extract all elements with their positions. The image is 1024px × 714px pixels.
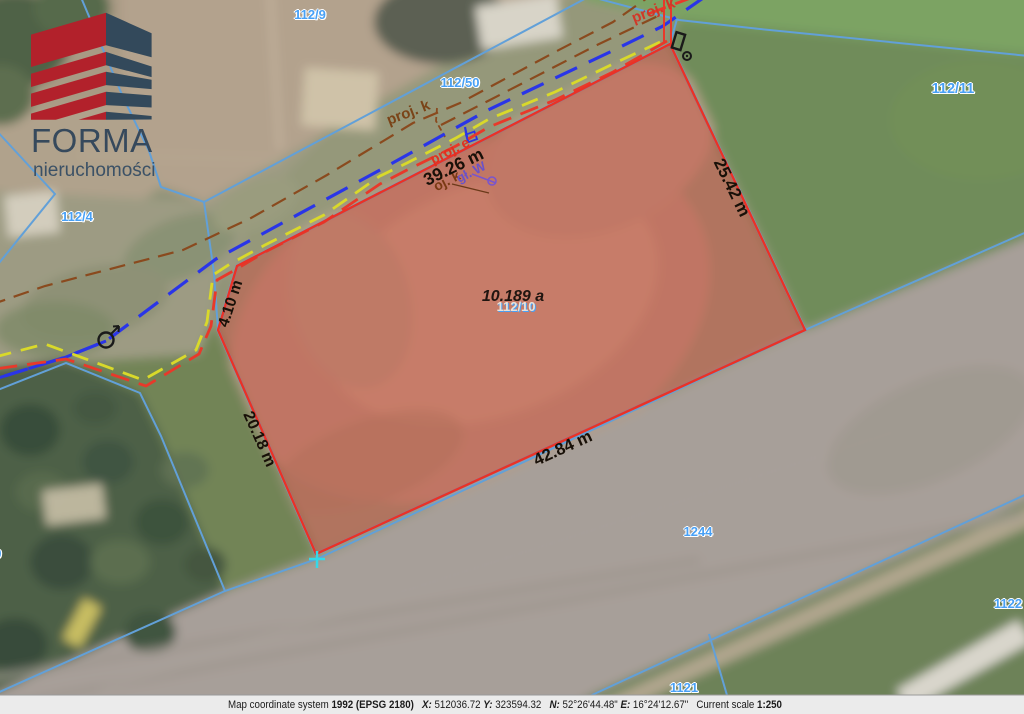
- svg-text:1244: 1244: [684, 524, 714, 539]
- svg-text:Map coordinate system 1992 (EP: Map coordinate system 1992 (EPSG 2180) X…: [228, 699, 782, 711]
- svg-text:112/50: 112/50: [440, 75, 479, 90]
- svg-text:112/50: 112/50: [0, 546, 2, 561]
- svg-text:nieruchomości: nieruchomości: [33, 160, 156, 181]
- svg-text:112/9: 112/9: [294, 7, 326, 22]
- svg-text:1121: 1121: [670, 680, 698, 695]
- svg-text:112/11: 112/11: [932, 81, 975, 97]
- svg-text:10.189 a: 10.189 a: [482, 288, 544, 305]
- svg-text:1122: 1122: [994, 596, 1022, 611]
- svg-text:FORMA: FORMA: [31, 122, 153, 159]
- svg-text:112/4: 112/4: [61, 209, 94, 224]
